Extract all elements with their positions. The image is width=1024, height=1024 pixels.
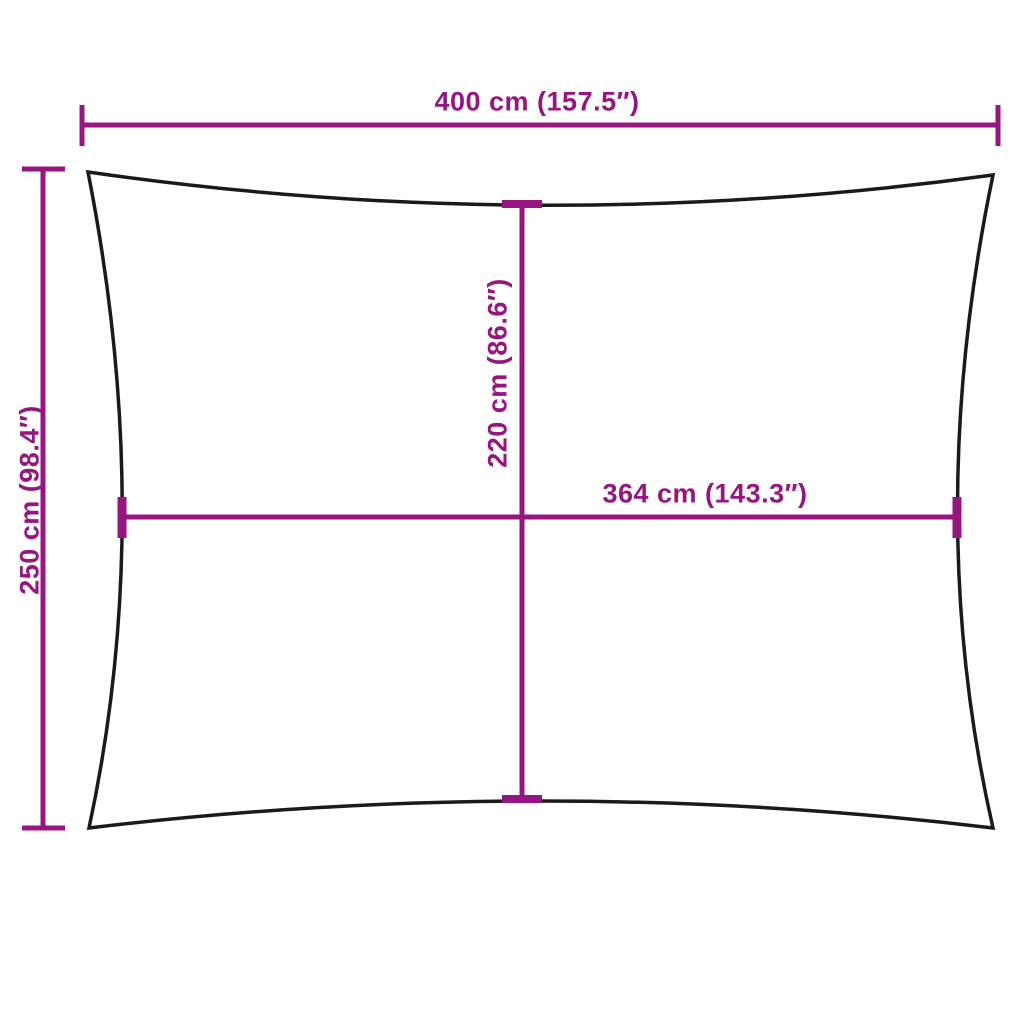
diagram-graphics xyxy=(0,0,1024,1024)
center-horizontal-dimension-line xyxy=(122,497,957,538)
inner-height-label: 220 cm (86.6″) xyxy=(483,278,514,468)
outer-width-label: 400 cm (157.5″) xyxy=(434,87,639,118)
outer-height-label: 250 cm (98.4″) xyxy=(15,405,46,595)
inner-width-label: 364 cm (143.3″) xyxy=(602,479,807,510)
sail-outline xyxy=(88,172,993,828)
dimension-diagram: 400 cm (157.5″) 250 cm (98.4″) 220 cm (8… xyxy=(0,0,1024,1024)
